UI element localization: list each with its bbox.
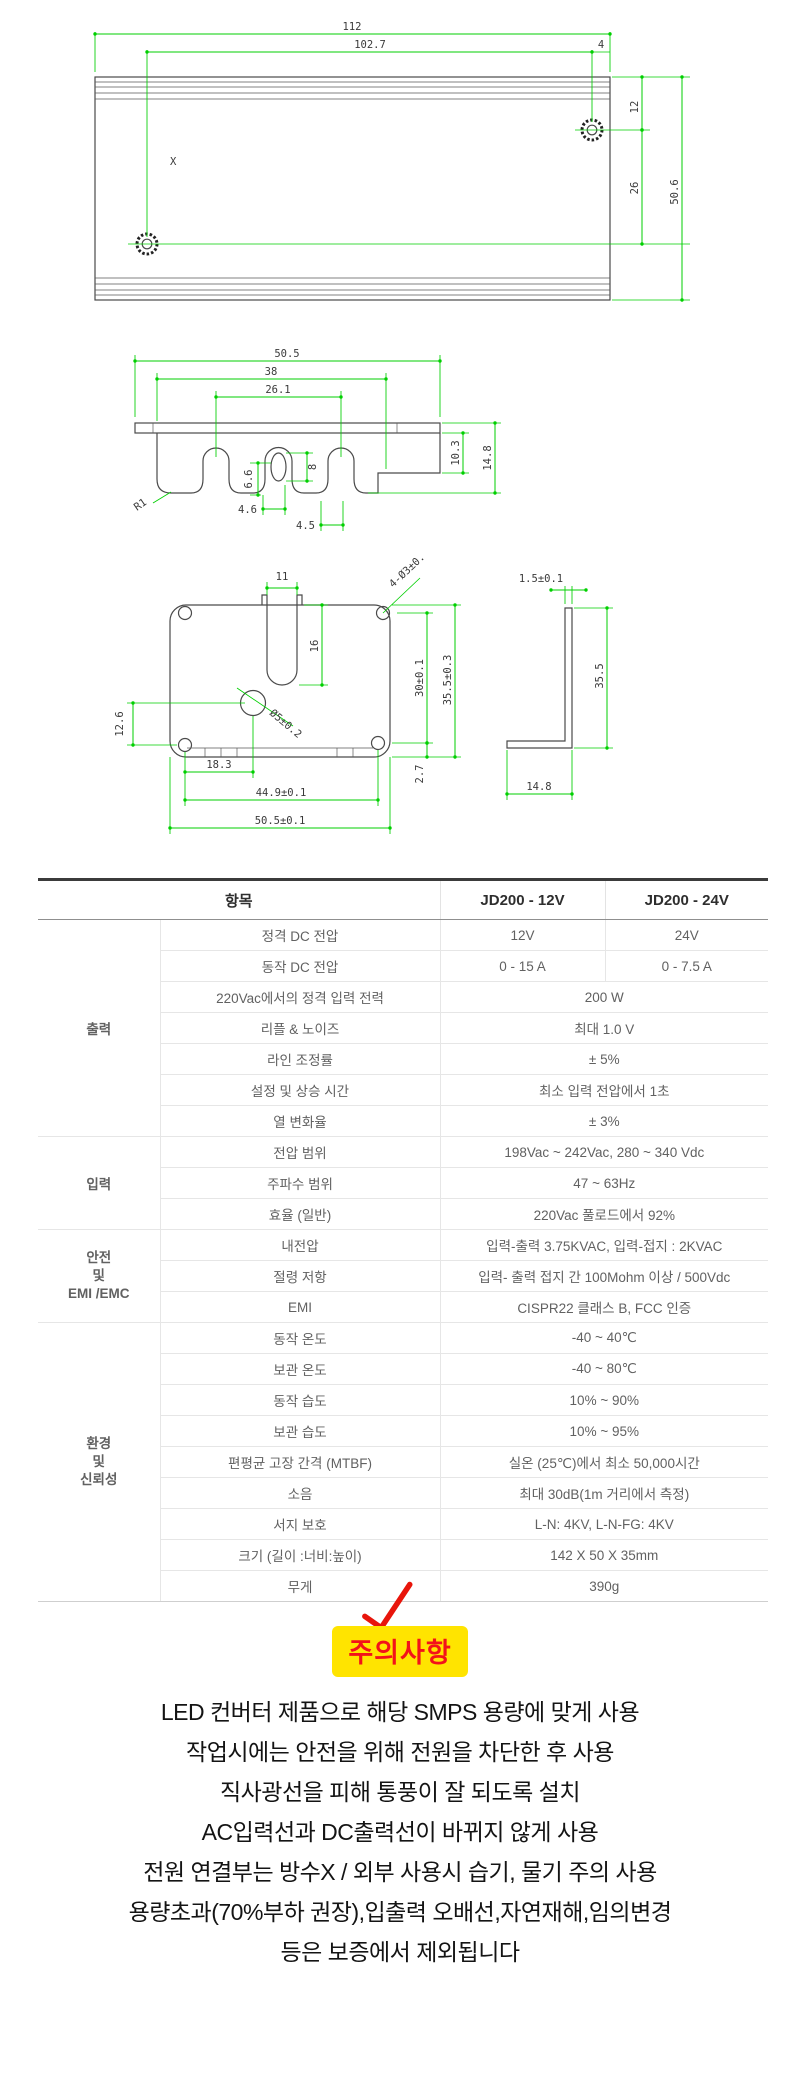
value-cell: 0 - 7.5 A: [605, 951, 768, 982]
dim-50-5: 50.5: [274, 348, 299, 360]
dim-14-8: 14.8: [482, 445, 494, 470]
caution-line: 직사광선을 피해 통풍이 잘 되도록 설치: [0, 1772, 800, 1812]
caution-line: 전원 연결부는 방수X / 외부 사용시 습기, 물기 주의 사용: [0, 1852, 800, 1892]
spec-row: 입력 전압 범위 198Vac ~ 242Vac, 280 ~ 340 Vdc: [38, 1137, 768, 1168]
value-cell: 47 ~ 63Hz: [440, 1168, 768, 1199]
dim-4-5: 4.5: [296, 520, 315, 532]
spec-table: 항목 JD200 - 12V JD200 - 24V 출력 정격 DC 전압 1…: [38, 878, 768, 1602]
value-cell: 220Vac 풀로드에서 92%: [440, 1199, 768, 1230]
item-cell: 동작 온도: [160, 1323, 440, 1354]
spec-row: 출력 정격 DC 전압 12V 24V: [38, 920, 768, 951]
col-header-item: 항목: [38, 880, 440, 920]
item-cell: 크기 (길이 :너비:높이): [160, 1540, 440, 1571]
spec-row: 환경 및 신뢰성 동작 온도 -40 ~ 40℃: [38, 1323, 768, 1354]
value-cell: 10% ~ 90%: [440, 1385, 768, 1416]
value-cell: 200 W: [440, 982, 768, 1013]
spec-header-row: 항목 JD200 - 12V JD200 - 24V: [38, 880, 768, 920]
item-cell: EMI: [160, 1292, 440, 1323]
group-cell-safety: 안전 및 EMI /EMC: [38, 1230, 160, 1323]
dim-50-6: 50.6: [669, 179, 681, 204]
group-cell-input: 입력: [38, 1137, 160, 1230]
technical-drawing-bracket-front: 50.5 38 26.1 6.6 8 4.6 4.5 R1 10.3 14.8: [95, 345, 515, 560]
item-cell: 절령 저항: [160, 1261, 440, 1292]
caution-badge: 주의사항: [332, 1626, 467, 1677]
dim-8: 8: [307, 464, 319, 470]
item-cell: 편평균 고장 간격 (MTBF): [160, 1447, 440, 1478]
technical-drawing-bracket-face-and-side: 11 4-Ø3±0.1 16 30±0.1 35.5±0.3 Ø5±0.2 12…: [75, 558, 725, 853]
item-cell: 보관 습도: [160, 1416, 440, 1447]
dim-26: 26: [629, 182, 641, 195]
value-cell: 12V: [440, 920, 605, 951]
item-cell: 소음: [160, 1478, 440, 1509]
group-cell-output: 출력: [38, 920, 160, 1137]
dim-16: 16: [309, 640, 321, 653]
dim-38: 38: [265, 366, 278, 378]
value-cell: 390g: [440, 1571, 768, 1602]
value-cell: CISPR22 클래스 B, FCC 인증: [440, 1292, 768, 1323]
item-cell: 효율 (일반): [160, 1199, 440, 1230]
value-cell: 최소 입력 전압에서 1초: [440, 1075, 768, 1106]
dim-corner-holes: 4-Ø3±0.1: [387, 558, 432, 590]
item-cell: 주파수 범위: [160, 1168, 440, 1199]
dim-12-6: 12.6: [114, 711, 126, 736]
item-cell: 보관 온도: [160, 1354, 440, 1385]
part-label-x: X: [170, 156, 177, 168]
dim-35-5-03: 35.5±0.3: [442, 655, 454, 706]
value-cell: L-N: 4KV, L-N-FG: 4KV: [440, 1509, 768, 1540]
item-cell: 열 변화율: [160, 1106, 440, 1137]
item-cell: 동작 DC 전압: [160, 951, 440, 982]
value-cell: -40 ~ 40℃: [440, 1323, 768, 1354]
caution-badge-row: 주의사항: [0, 1626, 800, 1677]
spec-row: 안전 및 EMI /EMC 내전압 입력-출력 3.75KVAC, 입력-접지 …: [38, 1230, 768, 1261]
item-cell: 내전압: [160, 1230, 440, 1261]
product-detail-page: X 112 102.7 4 12 26 50.6 50.5 38 26.1 6.…: [0, 0, 800, 2100]
dim-1-5: 1.5±0.1: [519, 573, 563, 585]
bracket-side-outline: [507, 608, 572, 748]
caution-line: 등은 보증에서 제외됩니다: [0, 1932, 800, 1972]
dim-50-5-01: 50.5±0.1: [255, 815, 306, 827]
technical-drawing-top-view: X 112 102.7 4 12 26 50.6: [50, 12, 730, 312]
value-cell: 최대 30dB(1m 거리에서 측정): [440, 1478, 768, 1509]
item-cell: 서지 보호: [160, 1509, 440, 1540]
value-cell: 24V: [605, 920, 768, 951]
dim-26-1: 26.1: [265, 384, 290, 396]
value-cell: 198Vac ~ 242Vac, 280 ~ 340 Vdc: [440, 1137, 768, 1168]
dim-center-hole: Ø5±0.2: [267, 707, 304, 741]
item-cell: 정격 DC 전압: [160, 920, 440, 951]
dim-30: 30±0.1: [414, 659, 426, 697]
dim-12: 12: [629, 101, 641, 114]
bracket-face-outline: [170, 595, 390, 757]
item-cell: 라인 조정률: [160, 1044, 440, 1075]
bracket-front-outline: [135, 423, 440, 493]
value-cell: ± 3%: [440, 1106, 768, 1137]
dim-102-7: 102.7: [354, 39, 386, 51]
item-cell: 전압 범위: [160, 1137, 440, 1168]
screw-icon: [137, 120, 602, 254]
value-cell: 142 X 50 X 35mm: [440, 1540, 768, 1571]
value-cell: 실온 (25℃)에서 최소 50,000시간: [440, 1447, 768, 1478]
dim-35-5: 35.5: [594, 663, 606, 688]
value-cell: 0 - 15 A: [440, 951, 605, 982]
caution-line: 용량초과(70%부하 권장),입출력 오배선,자연재해,임의변경: [0, 1892, 800, 1932]
col-header-model2: JD200 - 24V: [605, 880, 768, 920]
dim-14-8-side: 14.8: [526, 781, 551, 793]
item-cell: 리플 & 노이즈: [160, 1013, 440, 1044]
value-cell: 최대 1.0 V: [440, 1013, 768, 1044]
dim-112: 112: [343, 21, 362, 33]
value-cell: 입력- 출력 접지 간 100Mohm 이상 / 500Vdc: [440, 1261, 768, 1292]
dim-r1: R1: [132, 496, 149, 513]
dim-4-6: 4.6: [238, 504, 257, 516]
item-cell: 220Vac에서의 정격 입력 전력: [160, 982, 440, 1013]
dim-18-3: 18.3: [206, 759, 231, 771]
caution-text-block: LED 컨버터 제품으로 해당 SMPS 용량에 맞게 사용 작업시에는 안전을…: [0, 1692, 800, 1972]
value-cell: ± 5%: [440, 1044, 768, 1075]
dim-11: 11: [276, 571, 289, 583]
dim-6-6: 6.6: [243, 470, 255, 489]
item-cell: 설정 및 상승 시간: [160, 1075, 440, 1106]
psu-body-outline: [95, 77, 610, 300]
dim-2-7: 2.7: [414, 765, 426, 784]
dim-4: 4: [598, 39, 604, 51]
dim-44-9: 44.9±0.1: [256, 787, 307, 799]
group-cell-environment: 환경 및 신뢰성: [38, 1323, 160, 1602]
col-header-model1: JD200 - 12V: [440, 880, 605, 920]
caution-line: LED 컨버터 제품으로 해당 SMPS 용량에 맞게 사용: [0, 1692, 800, 1732]
value-cell: 입력-출력 3.75KVAC, 입력-접지 : 2KVAC: [440, 1230, 768, 1261]
value-cell: -40 ~ 80℃: [440, 1354, 768, 1385]
caution-line: AC입력선과 DC출력선이 바뀌지 않게 사용: [0, 1812, 800, 1852]
value-cell: 10% ~ 95%: [440, 1416, 768, 1447]
item-cell: 동작 습도: [160, 1385, 440, 1416]
caution-line: 작업시에는 안전을 위해 전원을 차단한 후 사용: [0, 1732, 800, 1772]
dim-10-3: 10.3: [450, 440, 462, 465]
